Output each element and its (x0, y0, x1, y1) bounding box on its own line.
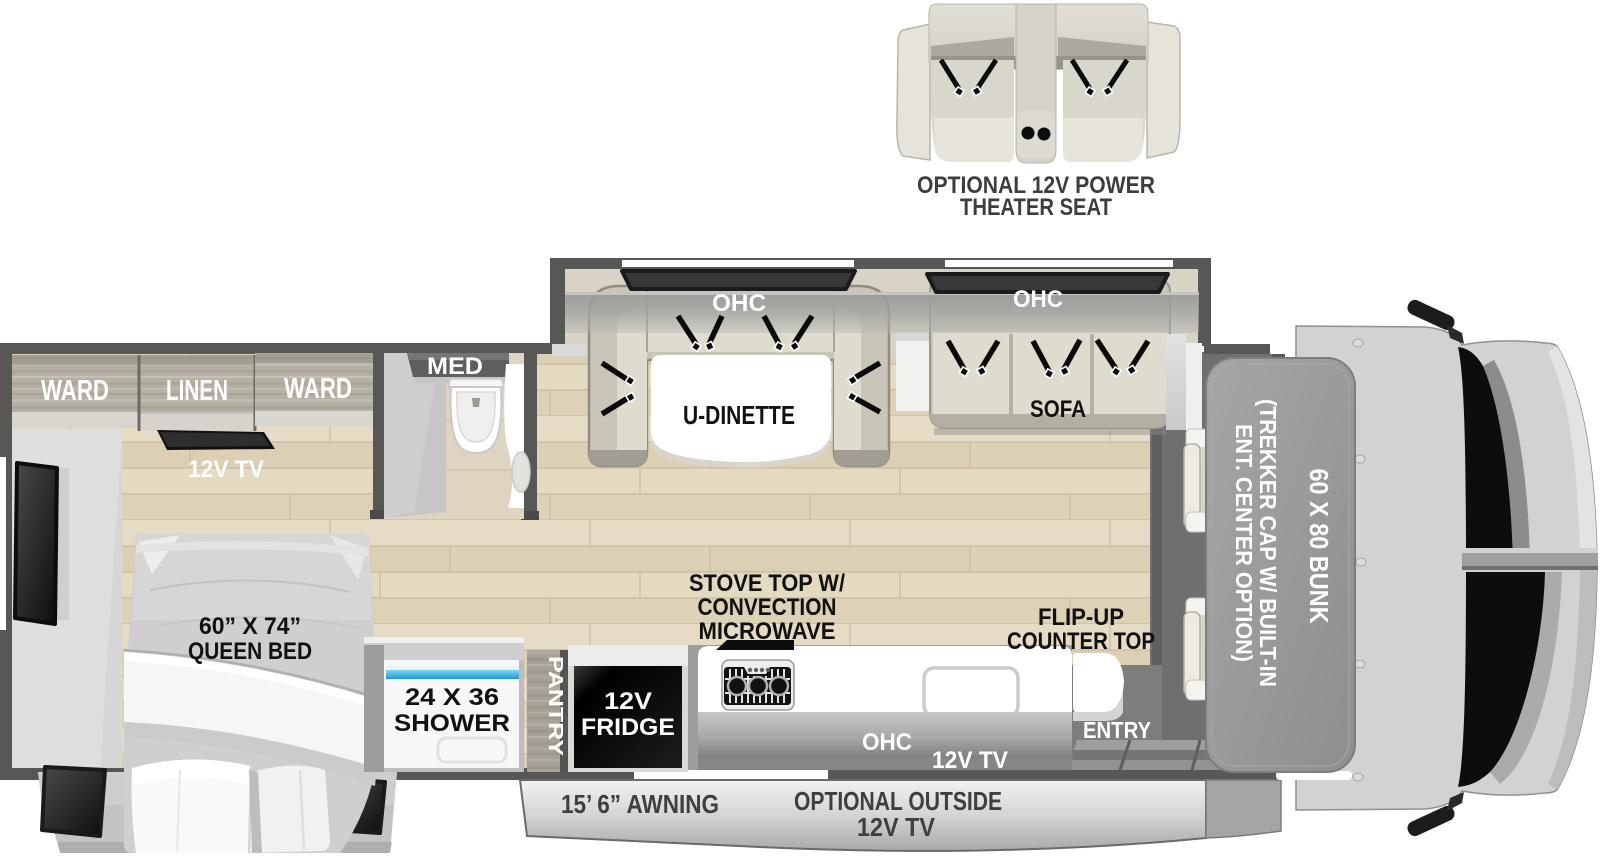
svg-text:ENTRY: ENTRY (1083, 717, 1151, 743)
svg-text:OHC: OHC (862, 729, 912, 756)
svg-text:12V: 12V (604, 688, 652, 715)
svg-text:MED: MED (427, 353, 483, 380)
svg-text:QUEEN BED: QUEEN BED (188, 638, 312, 665)
svg-text:SOFA: SOFA (1030, 396, 1086, 423)
svg-text:12V TV: 12V TV (188, 456, 264, 483)
svg-text:CONVECTION: CONVECTION (698, 594, 837, 621)
svg-text:60 X 80 BUNK: 60 X 80 BUNK (1304, 469, 1334, 624)
svg-text:OHC: OHC (712, 290, 766, 317)
svg-text:MICROWAVE: MICROWAVE (699, 618, 836, 645)
svg-text:(TREKKER CAP W/ BUILT-IN: (TREKKER CAP W/ BUILT-IN (1255, 399, 1281, 687)
svg-text:60” X 74”: 60” X 74” (199, 613, 301, 640)
svg-text:FLIP-UP: FLIP-UP (1038, 604, 1124, 631)
svg-text:12V TV: 12V TV (857, 812, 936, 842)
svg-text:24 X 36: 24 X 36 (405, 684, 499, 711)
svg-text:WARD: WARD (284, 373, 352, 405)
svg-text:U-DINETTE: U-DINETTE (683, 400, 795, 430)
svg-text:THEATER SEAT: THEATER SEAT (960, 194, 1112, 221)
svg-text:LINEN: LINEN (166, 375, 228, 407)
svg-text:COUNTER TOP: COUNTER TOP (1007, 628, 1155, 655)
svg-text:SHOWER: SHOWER (394, 710, 510, 737)
svg-text:STOVE TOP W/: STOVE TOP W/ (689, 570, 845, 597)
svg-text:WARD: WARD (41, 375, 109, 407)
svg-text:OHC: OHC (1013, 286, 1063, 313)
svg-text:12V TV: 12V TV (932, 747, 1008, 774)
svg-text:15’ 6” AWNING: 15’ 6” AWNING (561, 789, 719, 819)
svg-text:ENT. CENTER OPTION): ENT. CENTER OPTION) (1231, 424, 1257, 662)
svg-text:FRIDGE: FRIDGE (581, 714, 675, 741)
svg-text:PANTRY: PANTRY (544, 656, 566, 757)
